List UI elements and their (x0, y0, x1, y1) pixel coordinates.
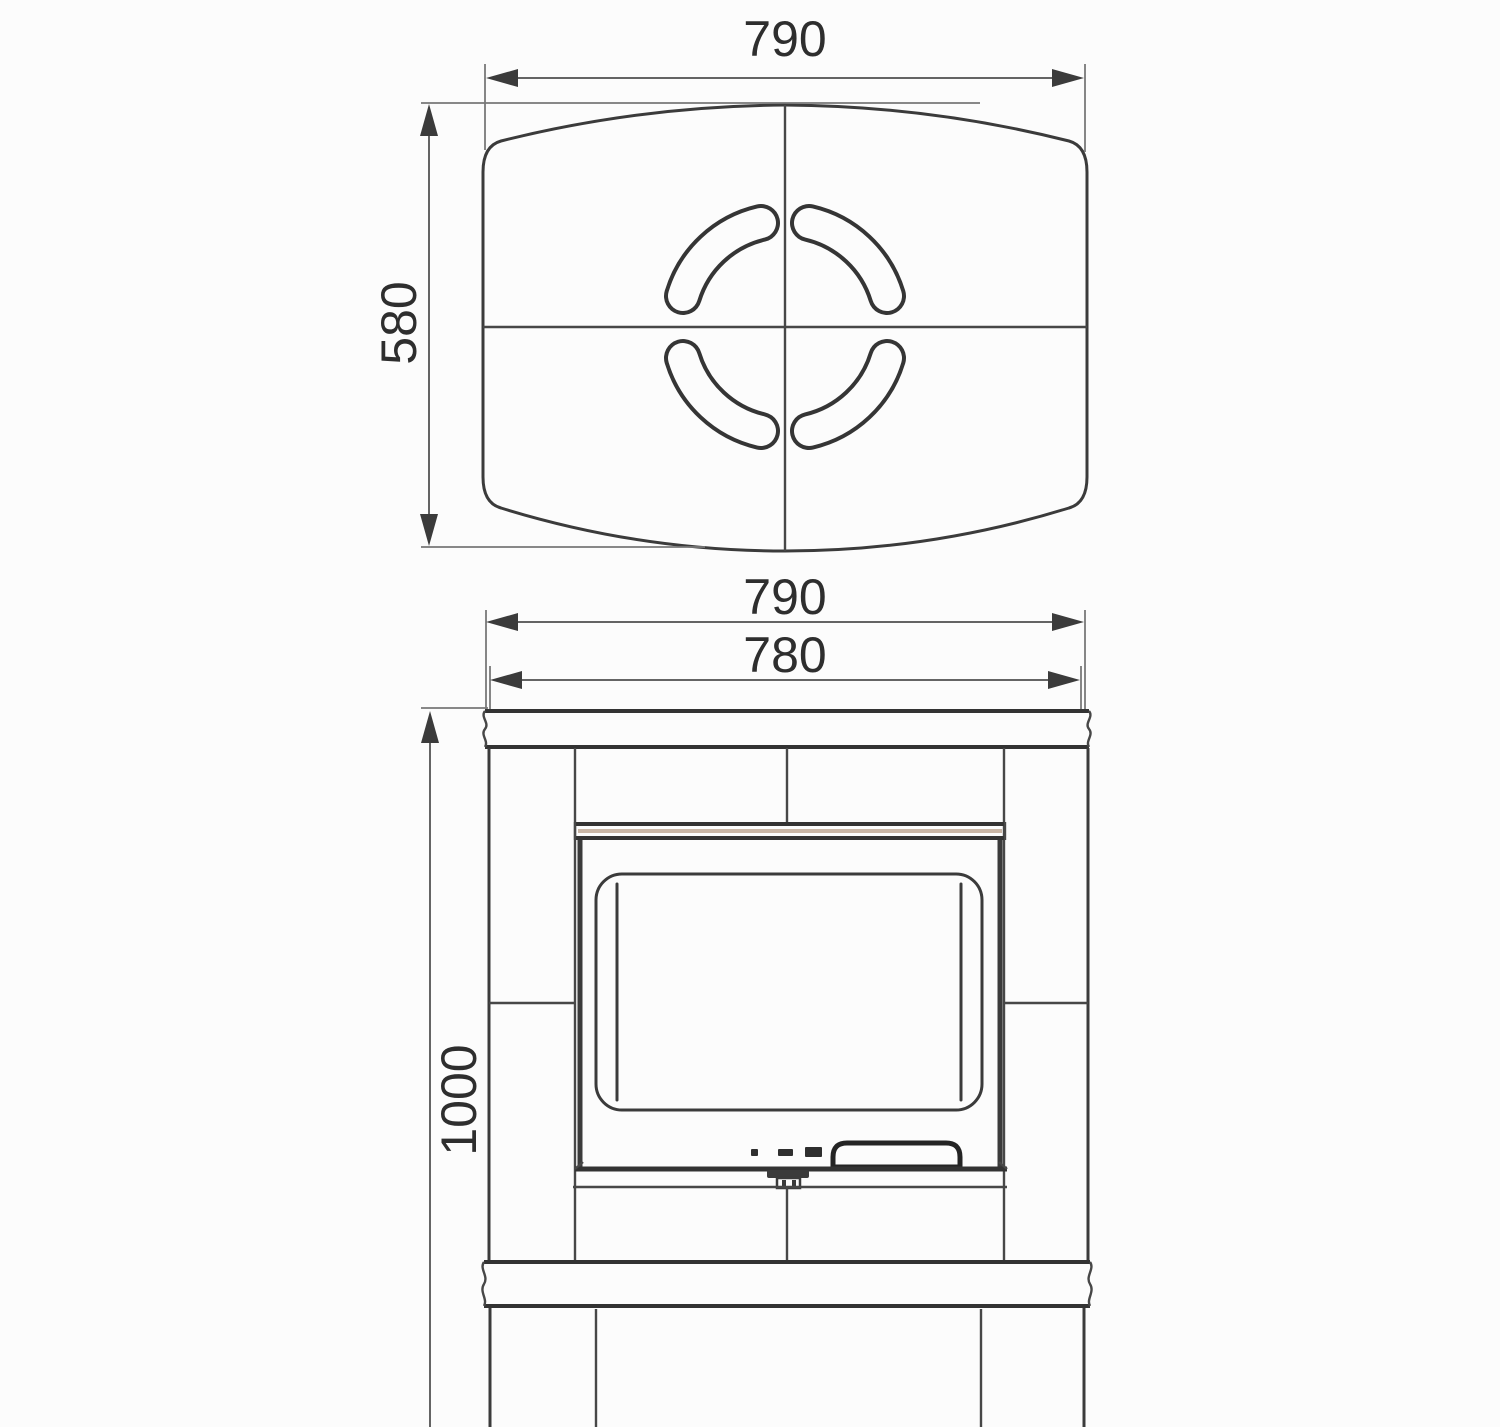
top-view-slot-bottom-left (683, 358, 761, 431)
door-handle (833, 1143, 960, 1167)
front-view-top-width-label: 790 (743, 569, 826, 625)
front-view-body-width-label: 780 (743, 627, 826, 683)
front-lower-panel (573, 1187, 1007, 1261)
front-view-height-label: 1000 (431, 1044, 487, 1155)
front-view-height-dimension: 1000 (421, 708, 488, 1427)
door-glass (596, 874, 982, 1110)
front-view-drawing: 790 780 1000 (421, 569, 1092, 1427)
front-top-plate-band (483, 711, 1090, 747)
base-plinth (490, 1308, 1084, 1427)
top-view-slot-top-left (683, 223, 761, 296)
drawing-svg: 790 580 790 780 (0, 0, 1500, 1427)
top-view-center-cross (483, 105, 1087, 551)
stove-dimension-diagram: 790 580 790 780 (0, 0, 1500, 1427)
top-view-width-label: 790 (743, 11, 826, 67)
top-view-drawing: 790 580 (371, 11, 1087, 551)
top-view-depth-dimension: 580 (371, 103, 980, 547)
door-top-bar (575, 822, 1005, 840)
top-view-slot-top-right (809, 223, 887, 296)
front-lower-band (482, 1262, 1091, 1306)
front-view-body-width-dimension: 780 (490, 627, 1081, 709)
stove-door (575, 840, 1007, 1188)
door-latch (767, 1170, 809, 1188)
top-view-slot-bottom-right (809, 358, 887, 431)
top-view-depth-label: 580 (371, 281, 427, 364)
air-vents (751, 1147, 822, 1157)
